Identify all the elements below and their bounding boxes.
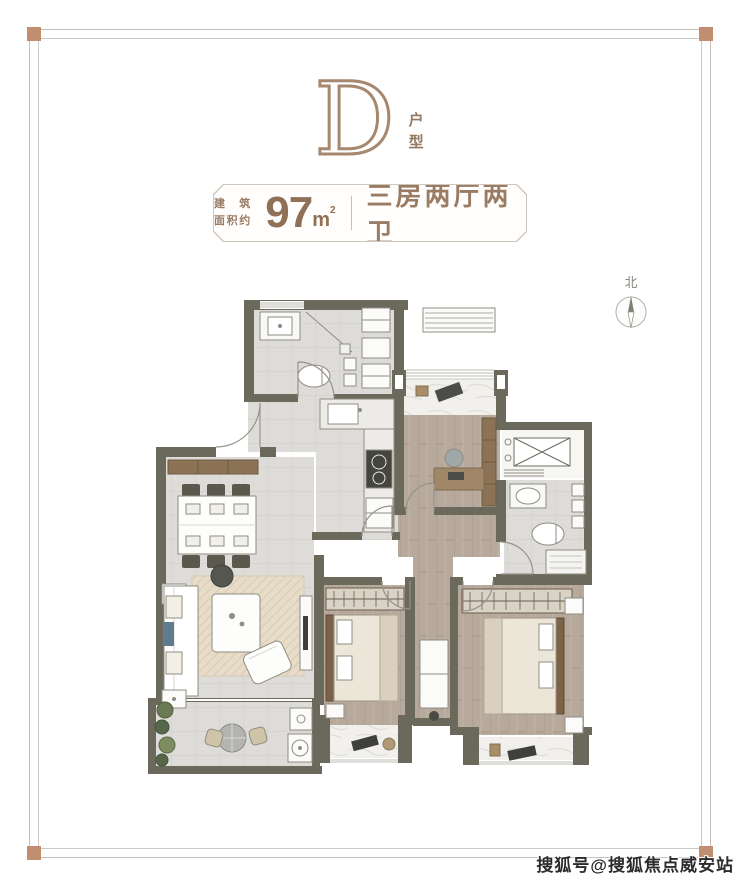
window-north-balcony — [406, 368, 494, 380]
frame-corner-top-right — [699, 27, 713, 41]
area-figure: 97 m 2 — [265, 191, 335, 235]
window-bay-bedroom-2 — [330, 758, 398, 764]
unit-type-suffix: 户型 — [405, 112, 426, 166]
layout-text: 三房两厅两卫 — [367, 176, 526, 250]
window-bath-guest — [260, 301, 304, 309]
area-prefix: 建 筑 面积约 — [214, 196, 250, 230]
louver-platform — [423, 308, 495, 332]
plaque-divider — [351, 196, 352, 230]
window-pier-left — [395, 375, 403, 389]
north-compass: 北 — [610, 272, 652, 337]
area-value: 97 — [265, 191, 312, 235]
spec-plaque: 建 筑 面积约 97 m 2 三房两厅两卫 — [213, 184, 527, 242]
compass-icon — [610, 292, 652, 332]
floorplan-page: D 户型 建 筑 面积约 97 m 2 三房两厅两卫 北 — [0, 0, 740, 885]
floorplan-drawing — [148, 300, 598, 780]
room-foyer — [248, 402, 316, 452]
area-unit: m — [312, 209, 330, 232]
room-corridor — [398, 515, 500, 557]
unit-type-heading: D 户型 — [0, 74, 740, 166]
unit-type-letter: D — [314, 74, 394, 166]
window-pier-right — [497, 375, 505, 389]
sliding-door-balcony — [168, 699, 312, 701]
frame-corner-top-left — [27, 27, 41, 41]
watermark: 搜狐号@搜狐焦点威安站 — [0, 851, 734, 876]
foyer-closet-cabinets — [362, 308, 390, 388]
window-bay-master — [479, 760, 573, 766]
north-label: 北 — [610, 272, 652, 291]
